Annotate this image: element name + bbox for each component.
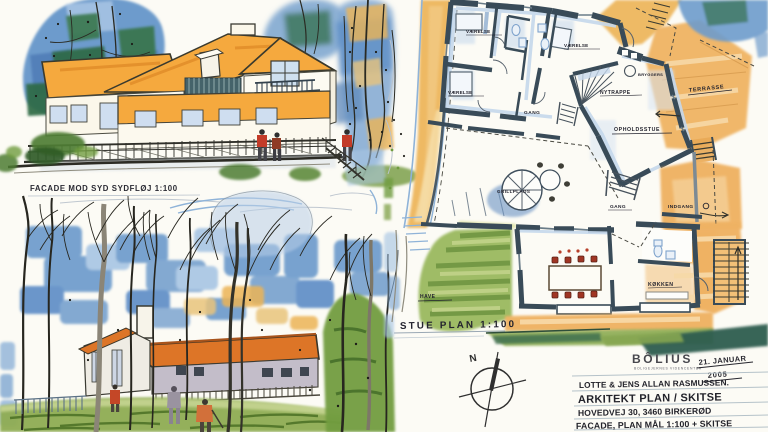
svg-text:OPHOLDSSTUE: OPHOLDSSTUE — [614, 127, 660, 133]
svg-text:HAVE: HAVE — [420, 294, 436, 300]
svg-text:BRYGGERS: BRYGGERS — [638, 72, 663, 77]
svg-text:VÆRELSE: VÆRELSE — [564, 43, 588, 48]
svg-text:BOLIGEJERNES VIDENCENTER: BOLIGEJERNES VIDENCENTER — [634, 367, 702, 371]
svg-text:BÔLIUS: BÔLIUS — [632, 351, 693, 366]
svg-text:ARKITEKT PLAN / SKITSE: ARKITEKT PLAN / SKITSE — [578, 391, 722, 406]
svg-text:GANG: GANG — [524, 110, 540, 116]
svg-text:VÆRELSE: VÆRELSE — [448, 90, 472, 95]
svg-text:GRILLPLADS: GRILLPLADS — [497, 189, 530, 194]
svg-text:GANG: GANG — [610, 204, 626, 210]
svg-text:STUE PLAN 1:100: STUE PLAN 1:100 — [400, 319, 516, 332]
svg-text:FACADE MOD SYD SYDFLØJ 1:100: FACADE MOD SYD SYDFLØJ 1:100 — [30, 184, 178, 193]
svg-text:VÆRELSE: VÆRELSE — [466, 29, 490, 34]
svg-text:INDGANG: INDGANG — [668, 204, 693, 210]
